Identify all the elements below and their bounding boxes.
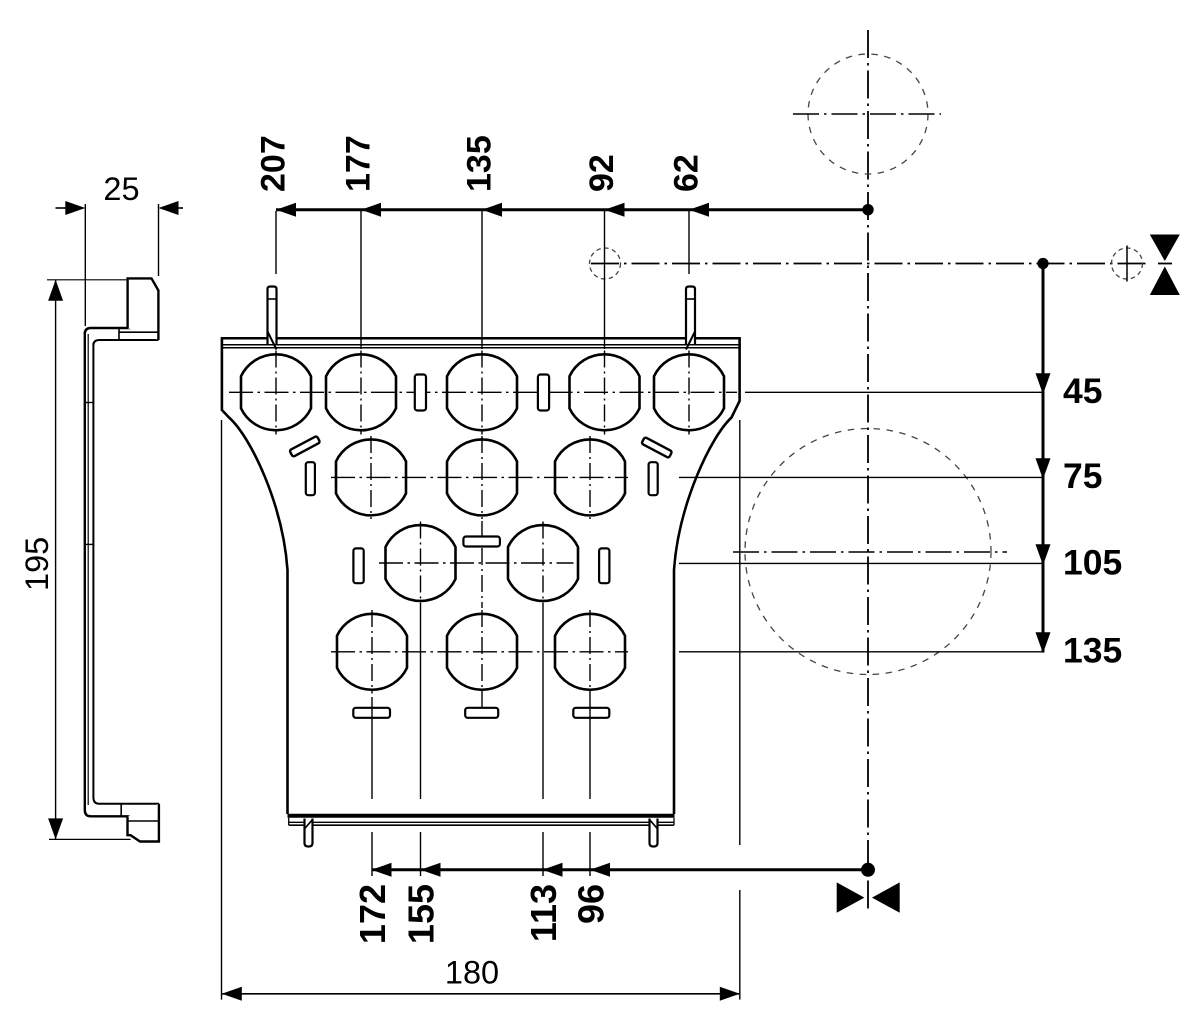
svg-text:113: 113 <box>523 884 564 942</box>
svg-text:25: 25 <box>103 171 139 207</box>
svg-text:75: 75 <box>1063 456 1103 496</box>
svg-text:45: 45 <box>1063 371 1103 411</box>
svg-text:180: 180 <box>445 955 499 991</box>
svg-text:135: 135 <box>1063 631 1122 671</box>
svg-text:155: 155 <box>401 884 442 944</box>
svg-text:177: 177 <box>340 135 378 192</box>
svg-text:195: 195 <box>19 537 55 591</box>
svg-text:96: 96 <box>571 884 612 924</box>
svg-text:135: 135 <box>461 135 499 192</box>
svg-text:105: 105 <box>1063 543 1122 583</box>
svg-text:207: 207 <box>255 135 293 192</box>
svg-text:92: 92 <box>583 154 621 192</box>
svg-text:62: 62 <box>668 154 706 192</box>
svg-text:172: 172 <box>352 884 393 944</box>
